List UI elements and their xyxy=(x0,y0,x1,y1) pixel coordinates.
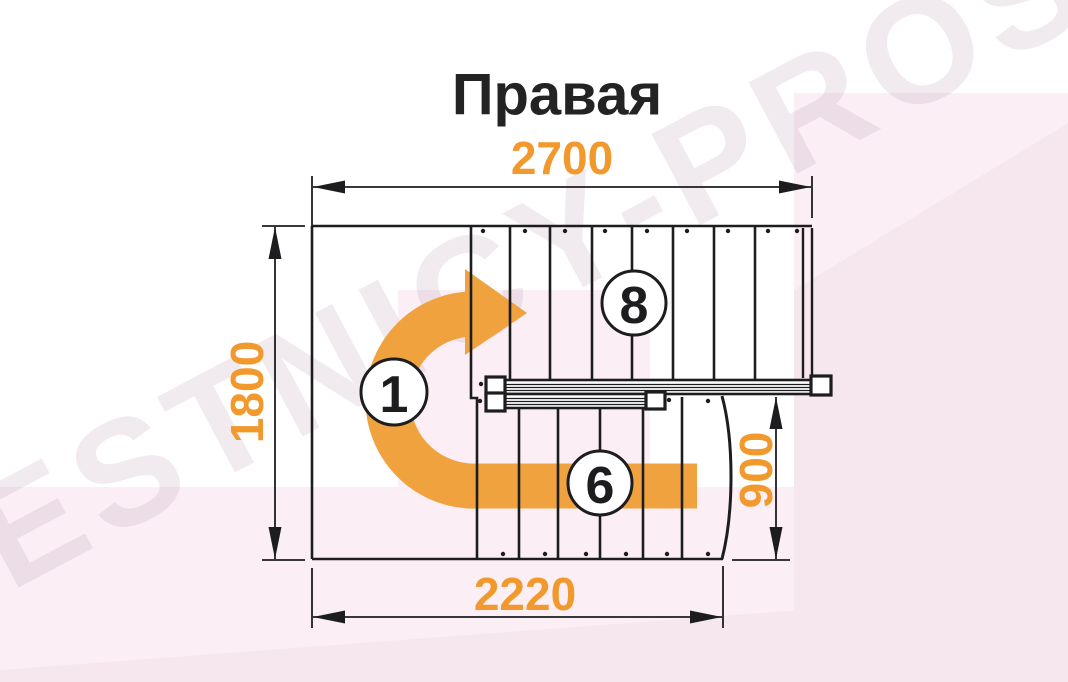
badge-step-6-value: 6 xyxy=(586,457,615,515)
page-title: Правая xyxy=(452,63,662,128)
diagram-svg: LESTNICY-PROSTO.RU xyxy=(0,0,1068,682)
lower-beam xyxy=(496,394,650,408)
bracket-lower-right xyxy=(646,392,665,409)
dim-value-top-width: 2700 xyxy=(511,132,613,184)
badge-step-8: 8 xyxy=(602,271,666,335)
dim-value-bottom-width: 2220 xyxy=(474,568,576,620)
landing-beams xyxy=(486,376,831,411)
badge-step-6: 6 xyxy=(568,451,632,515)
badge-step-8-value: 8 xyxy=(620,277,649,335)
badge-step-1: 1 xyxy=(361,359,427,425)
bracket-upper-right xyxy=(811,376,831,395)
bracket-lower-left xyxy=(486,393,505,411)
stair-plan-diagram: LESTNICY-PROSTO.RU xyxy=(0,0,1068,682)
dim-value-left-height: 1800 xyxy=(221,341,273,443)
arrow-left-icon xyxy=(313,181,345,194)
dim-value-right-height: 900 xyxy=(730,432,782,509)
arrow-up-icon xyxy=(269,227,282,259)
arrow-up-icon xyxy=(770,397,783,429)
badge-step-1-value: 1 xyxy=(380,366,409,424)
